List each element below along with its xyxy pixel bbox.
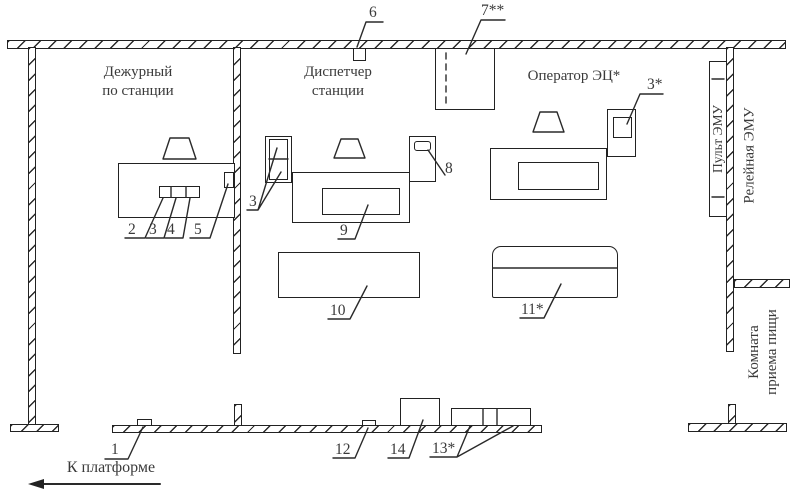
console-emu-label: Пульт ЭМУ <box>709 61 727 217</box>
platform-label: К платформе <box>55 459 167 477</box>
device-row-2-3-4 <box>159 186 200 198</box>
wall-partition-jamb <box>234 404 242 426</box>
console-emu-text: Пульт ЭМУ <box>710 105 726 173</box>
wall-left-foot <box>10 424 59 432</box>
item-group-13 <box>451 408 531 426</box>
relay-text: Релейная ЭМУ <box>742 107 759 203</box>
wall-relay-meal <box>734 279 790 288</box>
desk-operator-inner <box>518 162 599 190</box>
platform-text: К платформе <box>67 459 155 476</box>
room-label-dispatcher: Диспетчер станции <box>288 63 388 101</box>
monitor-3op-inner <box>613 117 632 138</box>
callout-6: 6 <box>369 4 377 22</box>
room-label-relay: Релейная ЭМУ <box>737 88 763 222</box>
callout-3: 3 <box>149 221 157 239</box>
operator-label: Оператор ЭЦ* <box>528 68 621 84</box>
item-1 <box>137 419 152 426</box>
chair-dispatcher <box>334 139 365 158</box>
room-label-operator: Оператор ЭЦ* <box>518 67 630 86</box>
meal-line2: приема пищи <box>763 309 781 395</box>
callout-12: 12 <box>335 441 351 459</box>
callout-5: 5 <box>194 221 202 239</box>
wall-top <box>7 40 786 49</box>
floor-plan-diagram: Дежурный по станции Диспетчер станции Оп… <box>0 0 790 493</box>
platform-arrow-head <box>28 479 44 489</box>
wall-meal-jamb <box>728 404 736 424</box>
callout-14: 14 <box>390 441 406 459</box>
device-5 <box>224 172 234 188</box>
callout-13: 13* <box>432 440 455 458</box>
box-7 <box>435 48 495 110</box>
wall-right <box>726 47 734 352</box>
callout-1: 1 <box>111 441 119 459</box>
meal-text: Комната приема пищи <box>745 309 781 395</box>
callout-7: 7** <box>481 2 504 20</box>
room-label-duty-officer: Дежурный по станции <box>88 63 188 101</box>
wall-meal-bottom <box>688 423 787 432</box>
item-14 <box>400 398 440 426</box>
callout-2: 2 <box>128 221 136 239</box>
duty-officer-line2: по станции <box>88 82 188 101</box>
callout-3-dispatcher: 3 <box>249 193 257 211</box>
dispatcher-line2: станции <box>288 82 388 101</box>
duty-officer-line1: Дежурный <box>88 63 188 82</box>
sofa-11 <box>492 246 618 298</box>
callout-10: 10 <box>330 302 346 320</box>
wall-left <box>28 47 36 425</box>
device-8-inner <box>414 141 431 151</box>
chair-duty-officer <box>163 138 196 159</box>
callout-11: 11* <box>521 301 544 319</box>
callout-9: 9 <box>340 222 348 240</box>
callout-4: 4 <box>167 221 175 239</box>
item-12 <box>362 420 376 426</box>
wall-bottom-main <box>112 425 542 433</box>
table-10 <box>278 252 420 298</box>
desk-panel-9 <box>322 188 400 215</box>
callout-8: 8 <box>445 160 453 178</box>
room-label-meal: Комната приема пищи <box>740 293 786 411</box>
dispatcher-line1: Диспетчер <box>288 63 388 82</box>
callout-3-operator: 3* <box>647 76 663 94</box>
meal-line1: Комната <box>745 309 763 395</box>
monitor-stack-inner <box>269 139 288 180</box>
box-6 <box>353 48 366 61</box>
chair-operator <box>533 112 564 132</box>
